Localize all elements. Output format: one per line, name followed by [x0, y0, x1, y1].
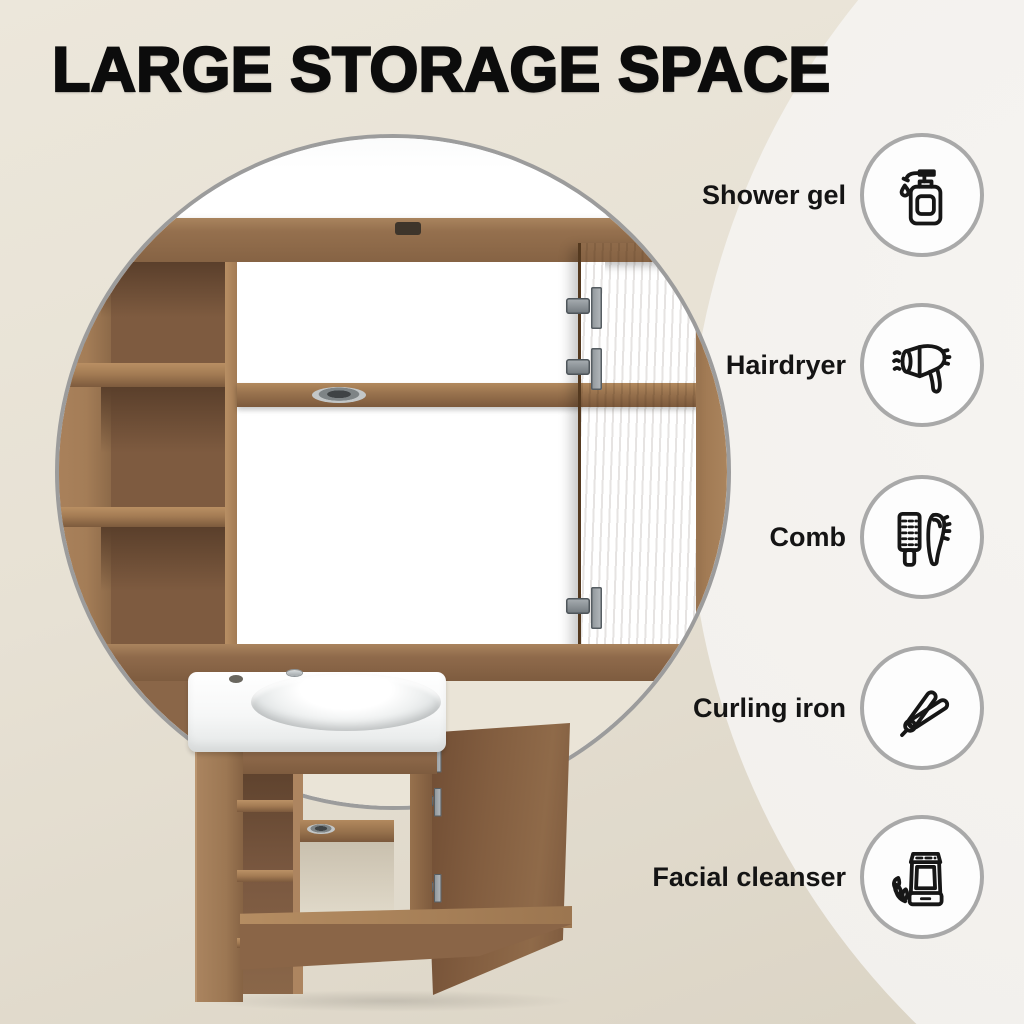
- feature-row-shower-gel: Shower gel: [702, 133, 984, 257]
- icon-circle: [860, 646, 984, 770]
- cable-grommet: [307, 824, 335, 834]
- icon-circle: [860, 133, 984, 257]
- open-compartment: [237, 262, 605, 383]
- feature-row-hairdryer: Hairdryer: [726, 303, 984, 427]
- sink-basin: [251, 673, 441, 731]
- side-panel: [195, 740, 243, 1002]
- feature-row-comb: Comb: [770, 475, 985, 599]
- door-hinge: [566, 348, 602, 390]
- door-hinge: [566, 587, 602, 629]
- shelf: [237, 800, 299, 812]
- facial-cleanser-icon: [884, 839, 960, 915]
- faucet-hole: [395, 222, 421, 235]
- back-shadow: [300, 842, 394, 914]
- cubby-shadow: [101, 387, 227, 507]
- shelf: [237, 870, 299, 882]
- open-compartment: [237, 407, 579, 644]
- cable-grommet: [312, 387, 366, 403]
- faucet-hole: [229, 675, 243, 683]
- feature-label: Shower gel: [702, 180, 846, 211]
- page-background: LARGE STORAGE SPACE: [0, 0, 1024, 1024]
- icon-circle: [860, 303, 984, 427]
- cubby-shadow: [101, 262, 227, 363]
- cubby-shadow: [101, 527, 227, 644]
- feature-label: Hairdryer: [726, 350, 846, 381]
- curling-iron-icon: [884, 670, 960, 746]
- feature-row-curling-iron: Curling iron: [693, 646, 984, 770]
- product-photo-vanity: [185, 660, 595, 1024]
- feature-label: Comb: [770, 522, 847, 553]
- comb-brush-icon: [884, 499, 960, 575]
- feature-label: Facial cleanser: [652, 862, 846, 893]
- page-title: LARGE STORAGE SPACE: [52, 34, 830, 106]
- shelf: [55, 363, 237, 387]
- hairdryer-icon: [884, 327, 960, 403]
- overflow-chrome: [287, 670, 302, 676]
- door-hinge: [566, 287, 602, 329]
- shelf: [55, 507, 237, 527]
- feature-row-facial-cleanser: Facial cleanser: [652, 815, 984, 939]
- icon-circle: [860, 475, 984, 599]
- feature-label: Curling iron: [693, 693, 846, 724]
- shower-gel-pump-icon: [884, 157, 960, 233]
- icon-circle: [860, 815, 984, 939]
